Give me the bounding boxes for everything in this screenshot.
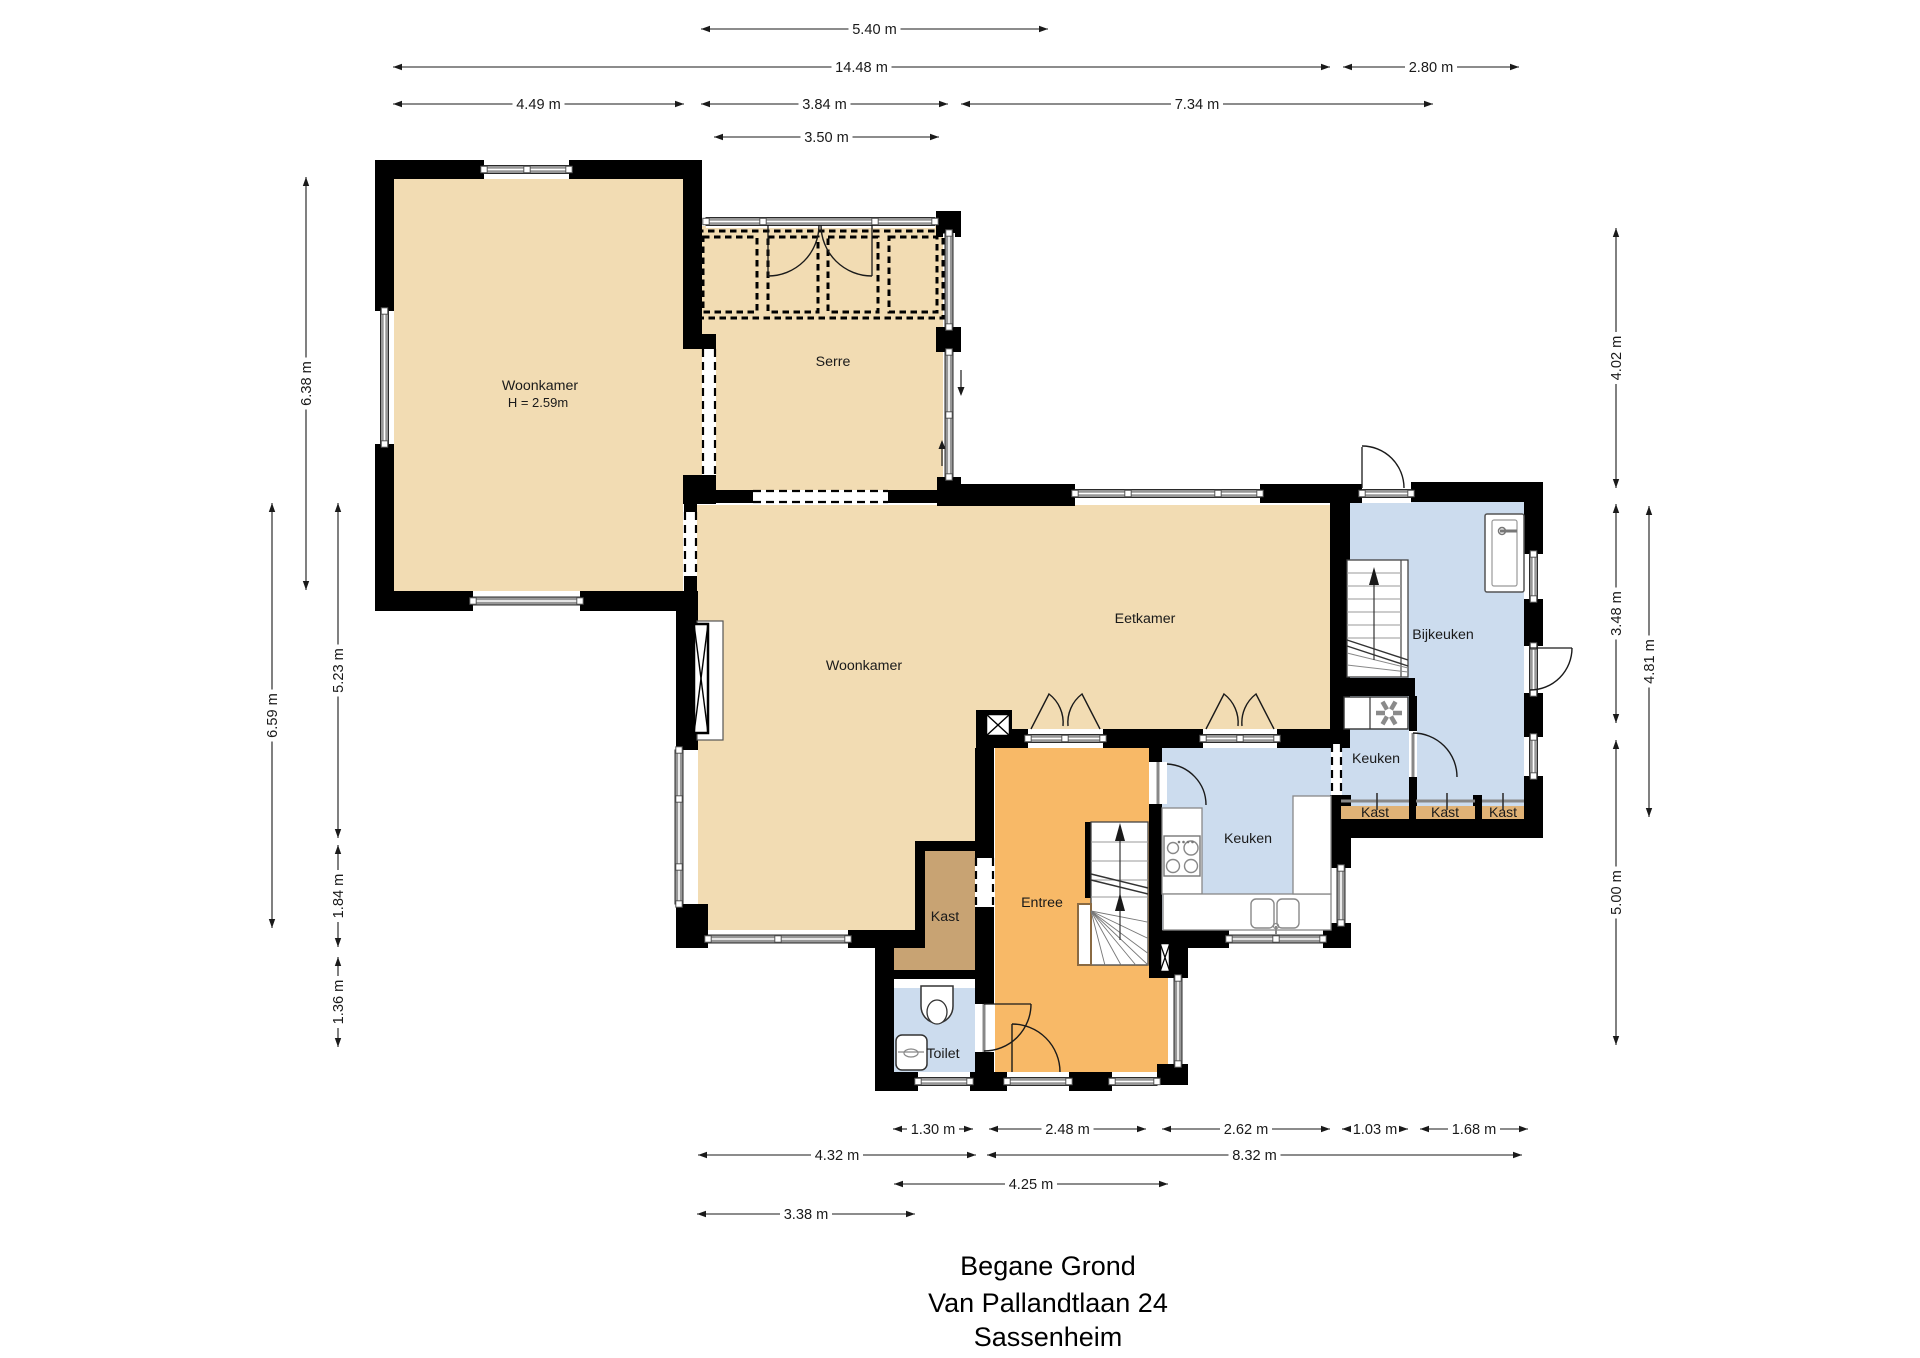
svg-text:3.48 m: 3.48 m [1609,591,1625,636]
svg-text:6.38 m: 6.38 m [299,361,315,406]
svg-text:4.25 m: 4.25 m [1009,1177,1054,1193]
svg-text:6.59 m: 6.59 m [265,693,281,738]
svg-text:Woonkamer: Woonkamer [502,378,578,394]
svg-text:Entree: Entree [1021,895,1063,911]
svg-text:Toilet: Toilet [926,1046,959,1062]
svg-text:1.03 m: 1.03 m [1353,1122,1398,1138]
svg-text:Woonkamer: Woonkamer [826,658,902,674]
svg-text:4.32 m: 4.32 m [815,1148,860,1164]
svg-text:Bijkeuken: Bijkeuken [1412,627,1474,643]
svg-text:Serre: Serre [816,354,851,370]
svg-text:Sassenheim: Sassenheim [974,1322,1123,1352]
svg-text:Kast: Kast [1489,804,1517,820]
svg-text:8.32 m: 8.32 m [1232,1148,1277,1164]
svg-text:Kast: Kast [931,909,959,925]
svg-text:Van Pallandtlaan 24: Van Pallandtlaan 24 [928,1288,1168,1318]
svg-text:Kast: Kast [1361,804,1389,820]
svg-text:7.34 m: 7.34 m [1175,97,1220,113]
svg-text:3.50 m: 3.50 m [804,130,849,146]
svg-text:Eetkamer: Eetkamer [1115,611,1176,627]
svg-text:Begane Grond: Begane Grond [960,1251,1136,1281]
svg-text:Kast: Kast [1431,804,1459,820]
svg-text:4.49 m: 4.49 m [516,97,561,113]
svg-text:5.40 m: 5.40 m [852,22,897,38]
svg-text:2.80 m: 2.80 m [1409,60,1454,76]
svg-text:14.48 m: 14.48 m [835,60,888,76]
svg-text:2.62 m: 2.62 m [1224,1122,1269,1138]
svg-text:2.48 m: 2.48 m [1045,1122,1090,1138]
svg-text:Keuken: Keuken [1224,831,1272,847]
svg-text:3.84 m: 3.84 m [802,97,847,113]
svg-text:1.68 m: 1.68 m [1452,1122,1497,1138]
svg-text:4.02 m: 4.02 m [1609,336,1625,381]
svg-text:Keuken: Keuken [1352,751,1400,767]
svg-text:5.00 m: 5.00 m [1609,870,1625,915]
svg-text:4.81 m: 4.81 m [1642,639,1658,684]
svg-text:H = 2.59m: H = 2.59m [508,395,568,410]
svg-text:1.84 m: 1.84 m [331,874,347,919]
svg-text:1.30 m: 1.30 m [911,1122,956,1138]
svg-text:1.36 m: 1.36 m [331,980,347,1025]
svg-text:5.23 m: 5.23 m [331,648,347,693]
svg-text:3.38 m: 3.38 m [784,1207,829,1223]
